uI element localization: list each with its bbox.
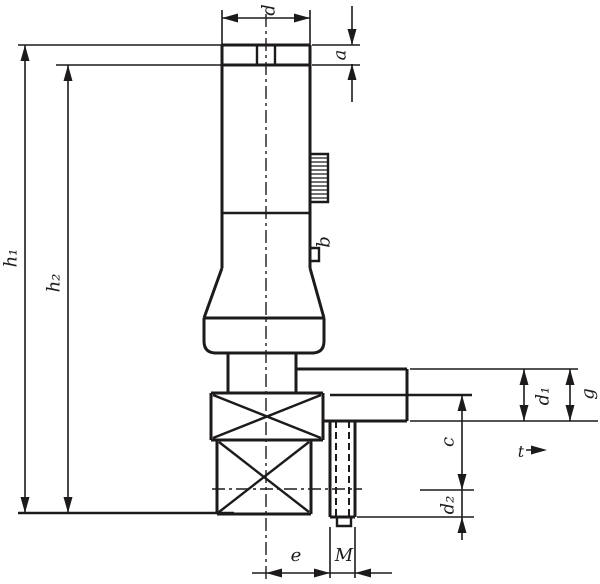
label-height-outer: h₁	[1, 249, 22, 268]
label-offset: e	[291, 545, 302, 566]
label-thread-length: g	[578, 388, 599, 400]
technical-drawing-page: d a h₁ h₂ b d₁ g c d₂ e M t	[0, 0, 600, 584]
dimension-lines	[18, 6, 598, 578]
label-nozzle-thread: M	[334, 545, 354, 566]
dimension-labels: d a h₁ h₂ b d₁ g c d₂ e M t	[1, 4, 599, 566]
dimension-drawing: d a h₁ h₂ b d₁ g c d₂ e M t	[0, 0, 600, 584]
label-top-diameter: d	[259, 4, 280, 16]
label-cap-height: a	[330, 50, 351, 61]
dimension-arrowheads	[21, 14, 575, 578]
knurl-hatching	[310, 158, 328, 198]
label-depth: t	[518, 442, 525, 461]
label-tip-diameter: d₂	[438, 496, 459, 515]
label-height-inner: h₂	[44, 274, 65, 293]
label-center-to-tip: c	[438, 437, 459, 447]
label-outlet-diameter: d₁	[533, 387, 554, 406]
hidden-bore-lines	[336, 421, 349, 517]
label-mid-detail: b	[314, 236, 335, 248]
extension-and-dimension-lines	[18, 6, 598, 578]
part-details	[18, 45, 472, 526]
part-outline	[18, 14, 472, 580]
